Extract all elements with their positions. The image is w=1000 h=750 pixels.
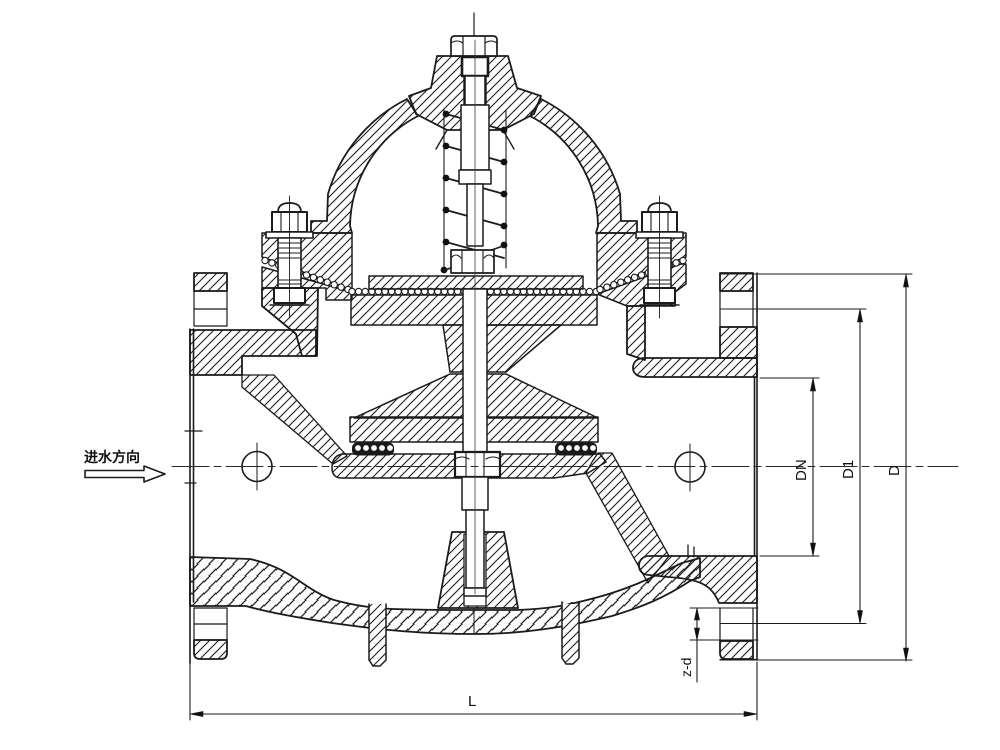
svg-text:L: L bbox=[468, 693, 476, 710]
svg-text:进水方向: 进水方向 bbox=[84, 449, 140, 465]
svg-text:DN: DN bbox=[793, 459, 810, 481]
svg-text:D: D bbox=[886, 465, 903, 476]
svg-text:D1: D1 bbox=[840, 460, 857, 479]
svg-text:z-d: z-d bbox=[678, 658, 694, 677]
